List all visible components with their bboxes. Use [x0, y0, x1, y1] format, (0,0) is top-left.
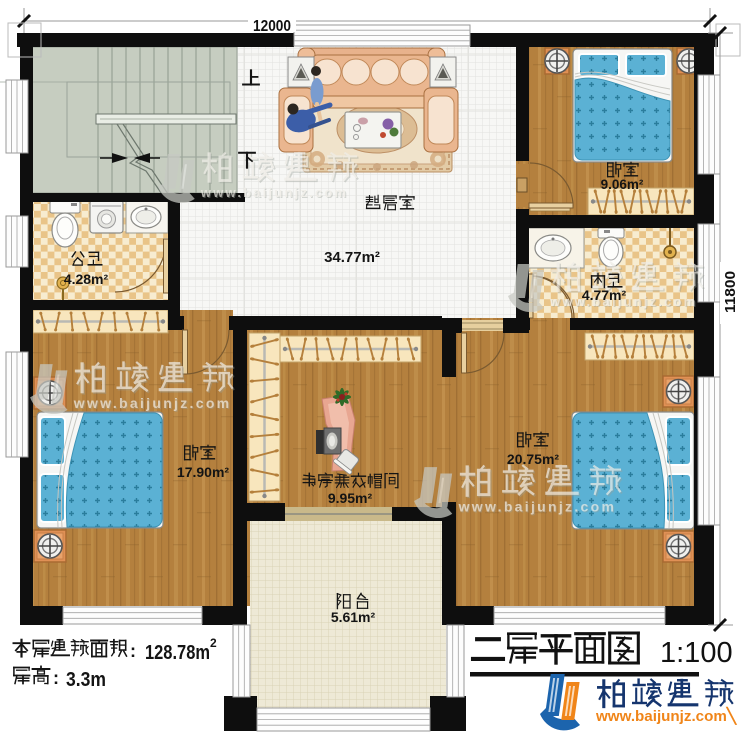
svg-text:4.77m²: 4.77m² — [582, 287, 627, 303]
svg-text::: : — [53, 668, 59, 688]
svg-text:1:100: 1:100 — [660, 637, 733, 669]
svg-text:34.77m²: 34.77m² — [324, 249, 380, 266]
svg-text:17.90m²: 17.90m² — [177, 464, 229, 480]
svg-text:20.75m²: 20.75m² — [507, 451, 559, 467]
svg-text:3.3m: 3.3m — [66, 669, 106, 691]
svg-text:www.baijunjz.com: www.baijunjz.com — [458, 499, 617, 515]
svg-text:www.baijunjz.com╲: www.baijunjz.com╲ — [595, 706, 738, 725]
svg-text::: : — [130, 641, 136, 661]
svg-text:128.78m: 128.78m — [145, 642, 210, 664]
svg-text:12000: 12000 — [253, 18, 291, 35]
svg-text:11800: 11800 — [722, 271, 739, 313]
svg-text:9.06m²: 9.06m² — [601, 177, 644, 192]
svg-text:5.61m²: 5.61m² — [331, 609, 376, 625]
svg-text:www.baijunjz.com: www.baijunjz.com — [73, 395, 232, 411]
svg-text:9.95m²: 9.95m² — [328, 490, 373, 506]
svg-text:www.baijunjz.com: www.baijunjz.com — [200, 185, 348, 200]
svg-text:4.28m²: 4.28m² — [64, 271, 109, 287]
svg-text:2: 2 — [210, 636, 217, 650]
